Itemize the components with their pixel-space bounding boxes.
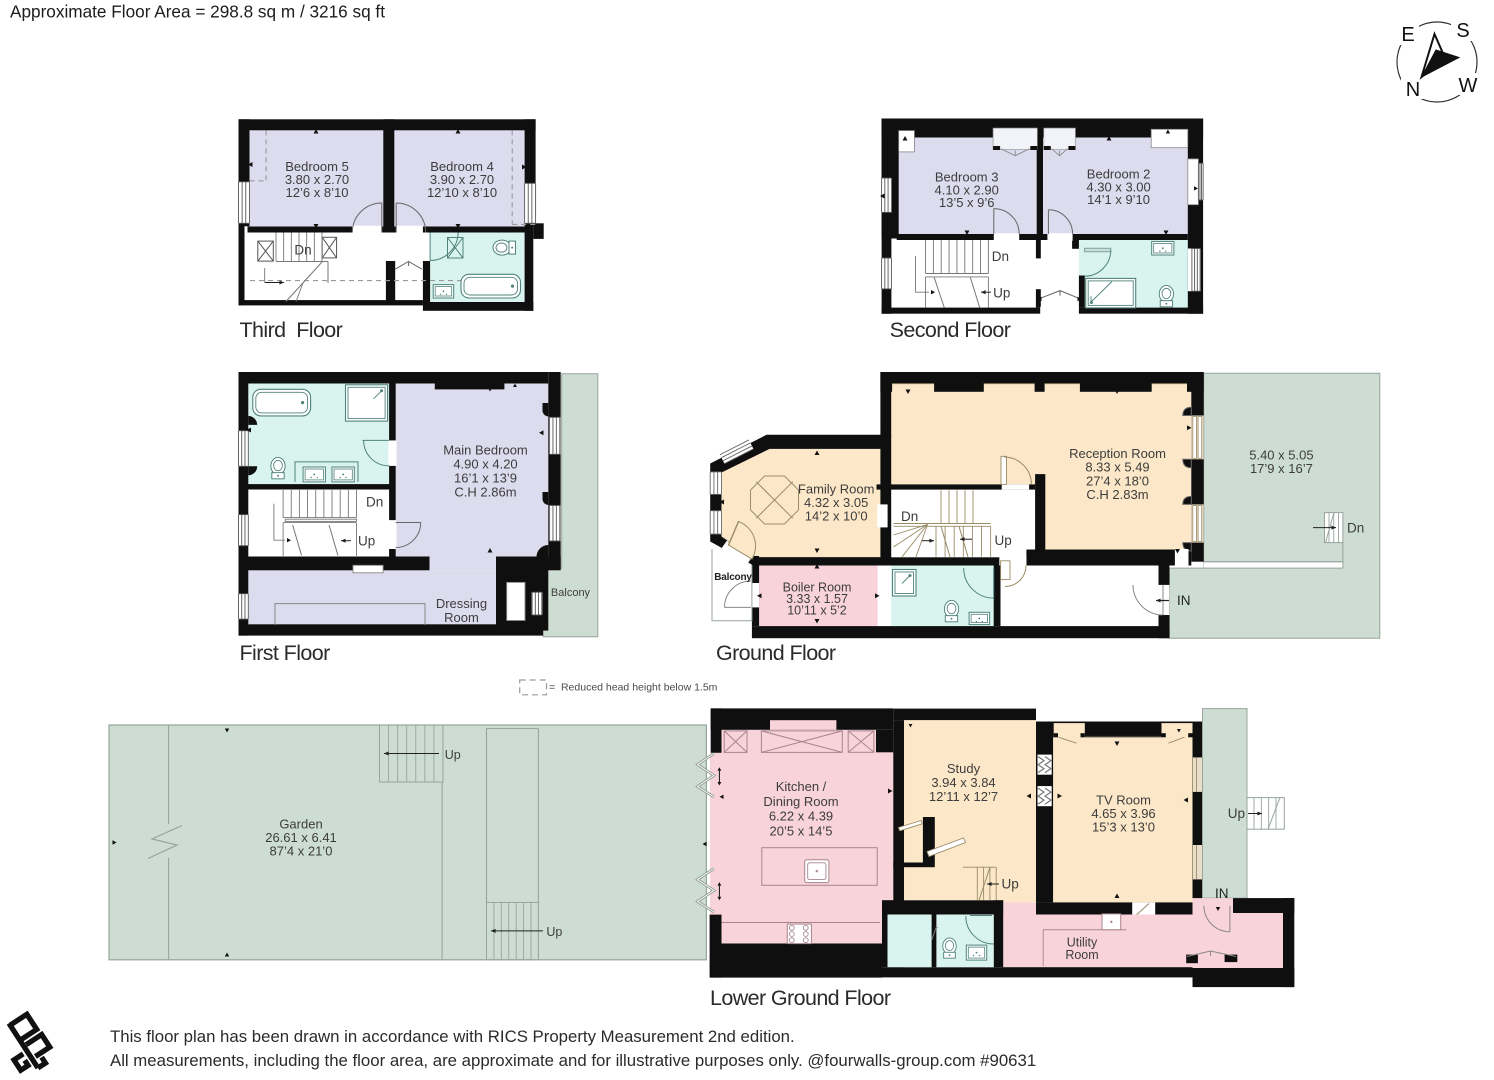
svg-text:C.H 2.86m: C.H 2.86m — [454, 485, 516, 500]
svg-text:Up: Up — [993, 285, 1010, 300]
svg-text:Dn: Dn — [1347, 521, 1364, 536]
svg-text:S: S — [1456, 20, 1469, 42]
svg-text:N: N — [1406, 79, 1420, 101]
svg-text:14’2 x 10’0: 14’2 x 10’0 — [805, 509, 868, 524]
svg-text:Up: Up — [995, 533, 1012, 548]
svg-text:12’11 x 12’7: 12’11 x 12’7 — [929, 789, 998, 804]
svg-text:Balcony: Balcony — [714, 572, 752, 583]
svg-text:IN: IN — [1177, 593, 1191, 608]
svg-text:= Reduced head height below 1: = Reduced head height below 1.5m — [549, 682, 718, 694]
svg-text:Kitchen /: Kitchen / — [776, 779, 827, 794]
svg-text:Approximate Floor Area = 298.8: Approximate Floor Area = 298.8 sq m / 32… — [10, 2, 385, 22]
svg-text:20’5 x 14’5: 20’5 x 14’5 — [770, 823, 833, 838]
svg-text:15’3 x 13’0: 15’3 x 13’0 — [1092, 820, 1155, 835]
svg-text:87’4 x 21’0: 87’4 x 21’0 — [270, 844, 333, 859]
svg-text:Ground Floor: Ground Floor — [716, 641, 836, 665]
svg-text:Second Floor: Second Floor — [890, 318, 1011, 342]
svg-text:First Floor: First Floor — [240, 641, 331, 665]
svg-text:W: W — [1459, 75, 1478, 97]
svg-text:All measurements, including th: All measurements, including the floor ar… — [110, 1051, 1036, 1070]
svg-text:Main Bedroom: Main Bedroom — [443, 443, 528, 458]
svg-text:14’1 x 9’10: 14’1 x 9’10 — [1087, 192, 1150, 207]
svg-text:Lower Ground Floor: Lower Ground Floor — [710, 986, 891, 1010]
svg-text:Room: Room — [444, 610, 479, 625]
svg-text:Dn: Dn — [294, 243, 311, 258]
svg-text:4.90 x 4.20: 4.90 x 4.20 — [453, 457, 517, 472]
svg-text:Room: Room — [1065, 948, 1098, 962]
svg-text:Up: Up — [1002, 877, 1019, 892]
svg-text:E: E — [1401, 24, 1414, 46]
svg-text:Up: Up — [1228, 806, 1245, 821]
svg-text:6.22 x 4.39: 6.22 x 4.39 — [769, 809, 833, 824]
svg-text:Dn: Dn — [901, 509, 918, 524]
svg-text:Dn: Dn — [992, 249, 1009, 264]
svg-text:13’5 x 9’6: 13’5 x 9’6 — [939, 195, 995, 210]
svg-text:Balcony: Balcony — [551, 587, 591, 599]
svg-text:Up: Up — [358, 534, 375, 549]
svg-text:16’1 x 13’9: 16’1 x 13’9 — [454, 471, 517, 486]
svg-text:3.94 x 3.84: 3.94 x 3.84 — [931, 775, 995, 790]
svg-text:Third Floor: Third Floor — [240, 318, 343, 342]
svg-text:Up: Up — [445, 748, 461, 762]
svg-text:10’11 x 5’2: 10’11 x 5’2 — [787, 604, 847, 618]
svg-text:Dining Room: Dining Room — [763, 794, 838, 809]
svg-text:17’9 x 16’7: 17’9 x 16’7 — [1250, 461, 1313, 476]
svg-text:C.H 2.83m: C.H 2.83m — [1086, 487, 1148, 502]
svg-text:12’10 x 8’10: 12’10 x 8’10 — [427, 185, 497, 200]
svg-text:This floor plan has been drawn: This floor plan has been drawn in accord… — [110, 1027, 795, 1046]
svg-text:Up: Up — [546, 925, 562, 939]
svg-text:Study: Study — [947, 761, 981, 776]
svg-text:Dn: Dn — [366, 494, 383, 509]
svg-text:Dressing: Dressing — [436, 596, 487, 611]
svg-text:12’6 x 8’10: 12’6 x 8’10 — [286, 185, 349, 200]
